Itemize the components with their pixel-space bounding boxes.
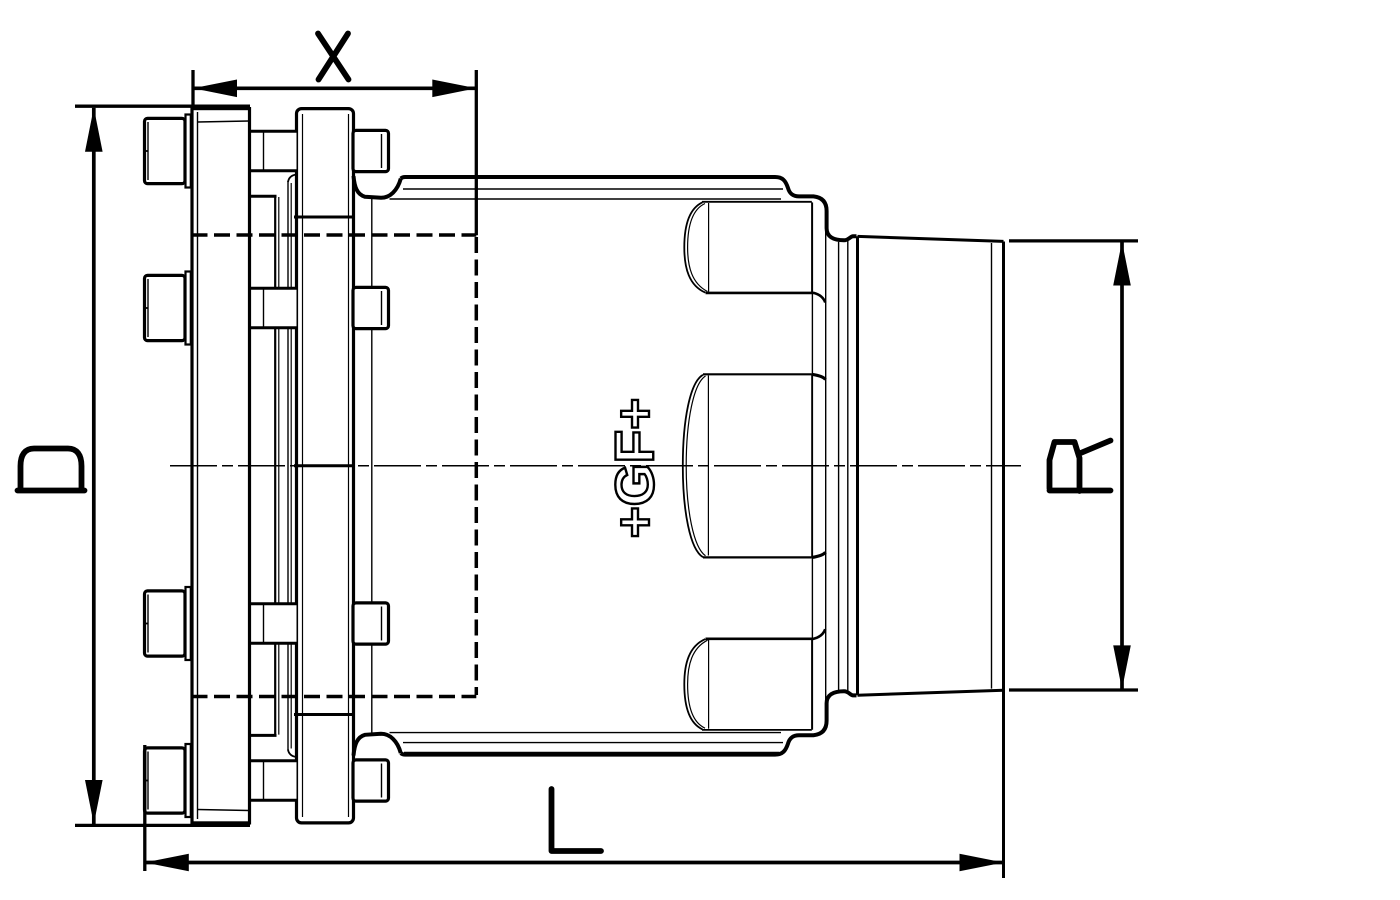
svg-text:+GF+: +GF+ [604,398,666,539]
